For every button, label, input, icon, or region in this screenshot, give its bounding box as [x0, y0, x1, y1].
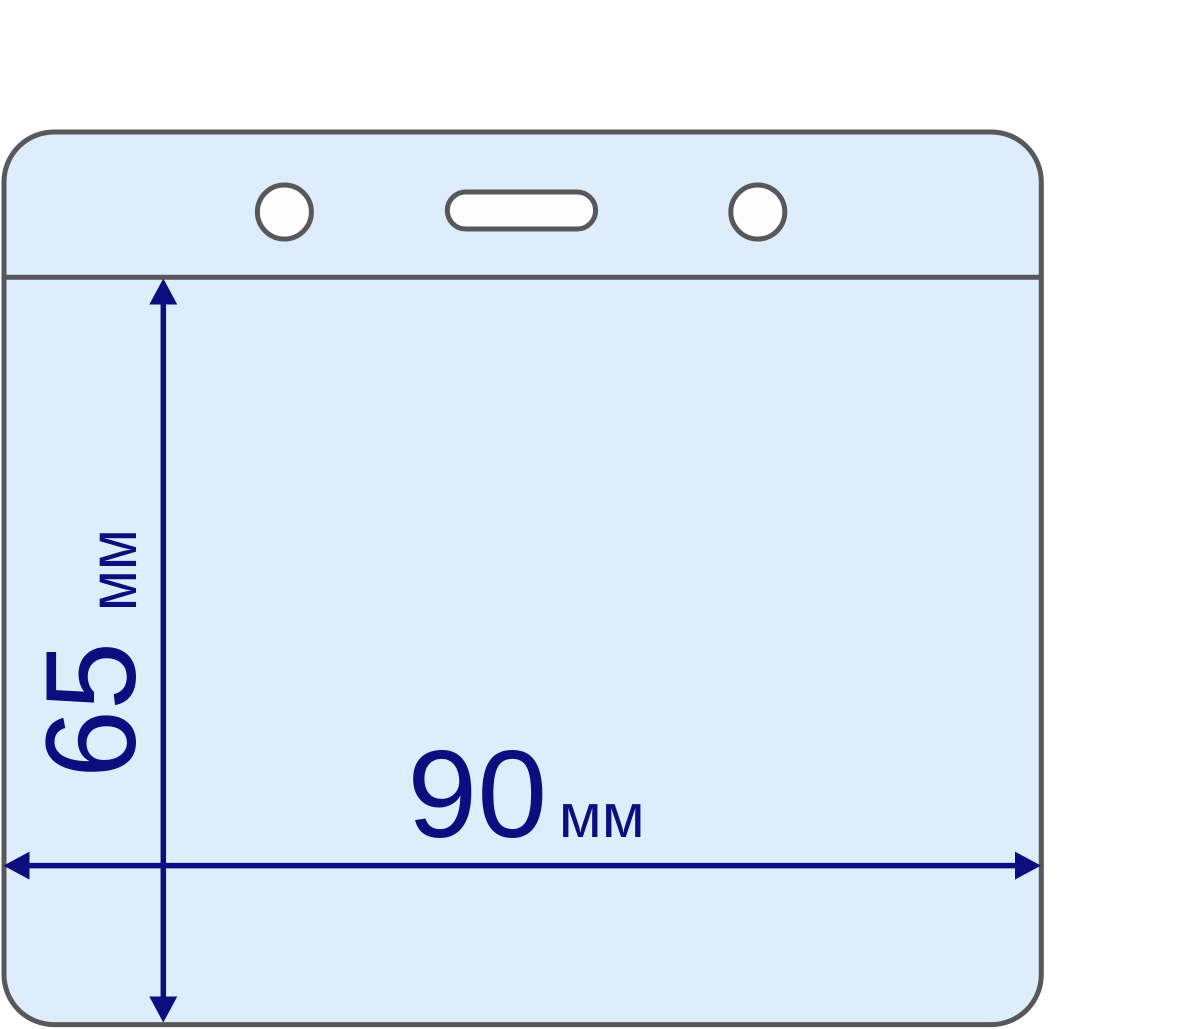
- svg-text:мм: мм: [74, 529, 151, 611]
- svg-text:мм: мм: [559, 782, 645, 851]
- svg-text:65: 65: [20, 642, 163, 778]
- svg-text:90: 90: [407, 726, 547, 864]
